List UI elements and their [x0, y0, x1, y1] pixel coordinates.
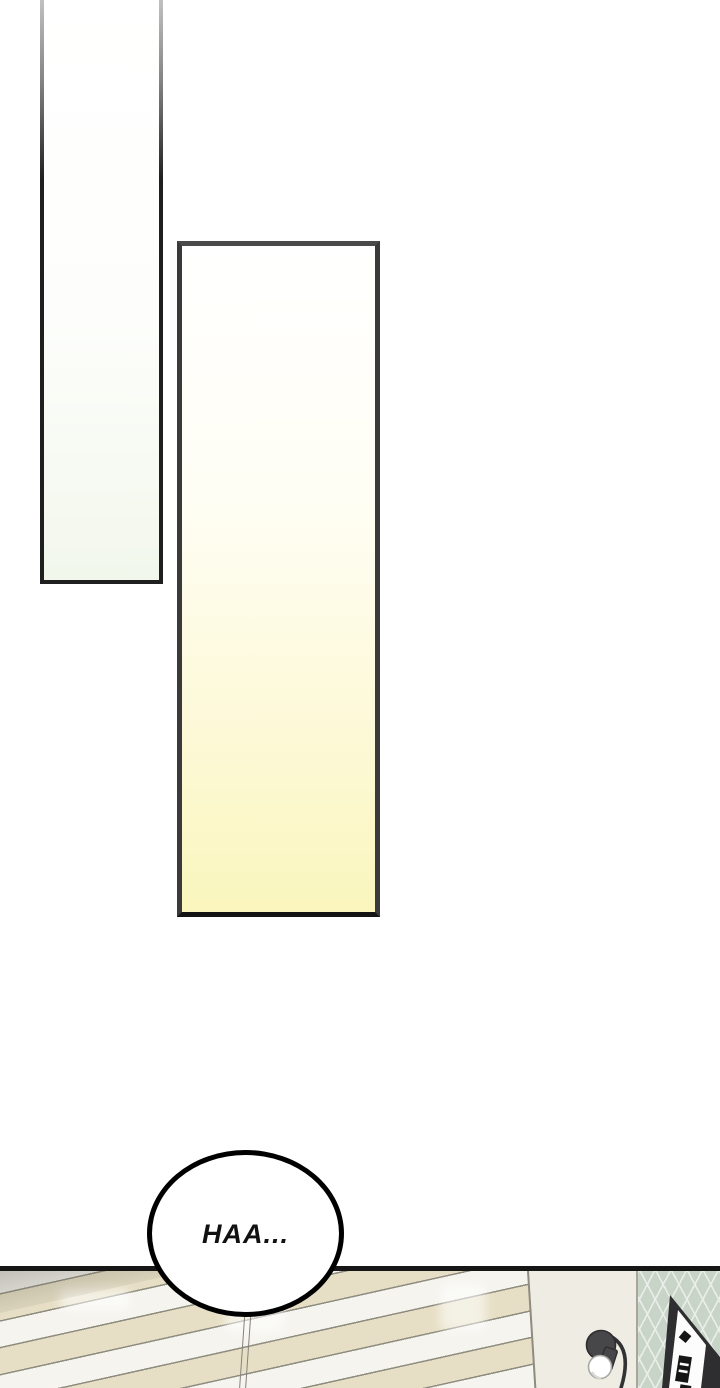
panel-tall-left [40, 0, 163, 584]
bottom-scene [0, 1266, 720, 1388]
speech-bubble: HAA... [147, 1150, 344, 1317]
lamp-bulb [589, 1356, 612, 1379]
panel-tall-center [177, 241, 380, 917]
wall-lamp [587, 1331, 626, 1388]
picture-frame [662, 1295, 720, 1388]
scene-decor-svg [0, 1266, 720, 1388]
speech-text: HAA... [202, 1219, 289, 1250]
comic-page: HAA... [0, 0, 720, 1388]
